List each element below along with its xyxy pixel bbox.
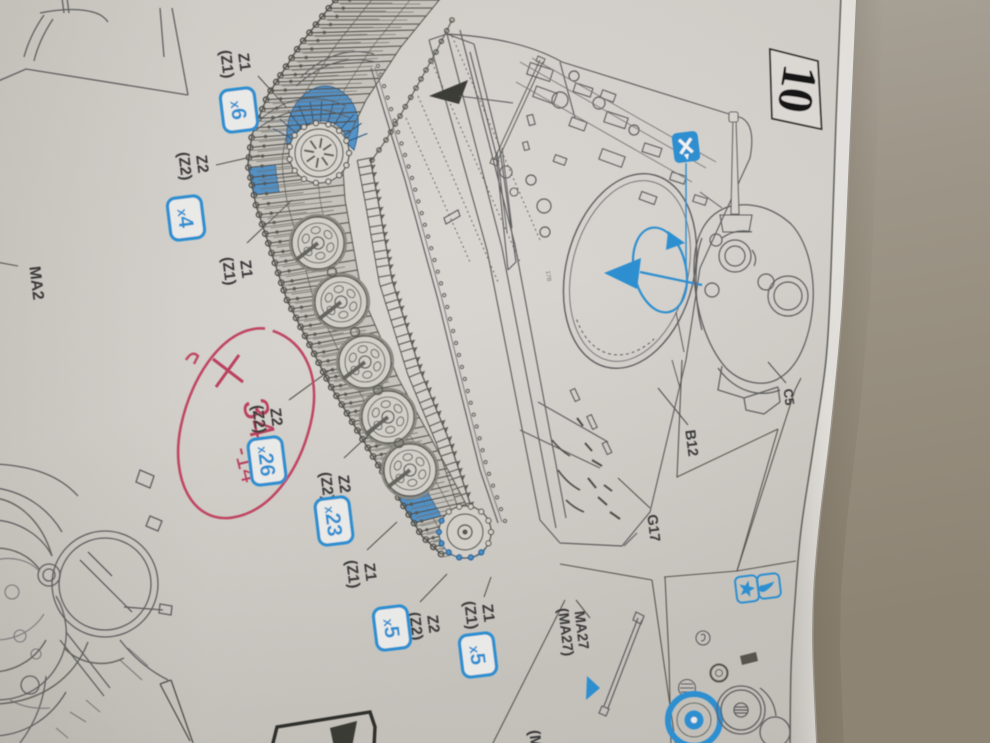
svg-text:(Z1): (Z1)	[342, 559, 362, 589]
svg-text:Z1: Z1	[478, 603, 497, 623]
svg-text:(Z2): (Z2)	[174, 151, 194, 181]
svg-text:Z1: Z1	[236, 259, 255, 279]
svg-text:Z2: Z2	[192, 154, 211, 174]
svg-text:(Z1): (Z1)	[460, 600, 480, 630]
svg-text:G17: G17	[643, 514, 662, 543]
svg-text:Z2: Z2	[266, 407, 285, 427]
svg-text:Z1: Z1	[360, 562, 379, 582]
svg-text:C5: C5	[781, 388, 798, 406]
svg-text:Z2: Z2	[423, 614, 442, 634]
svg-text:(Z1): (Z1)	[216, 49, 236, 79]
svg-text:Z2: Z2	[334, 474, 353, 494]
svg-text:B12: B12	[681, 429, 700, 457]
svg-text:(Z2): (Z2)	[248, 404, 268, 434]
svg-text:(M: (M	[525, 729, 544, 743]
svg-text:Z1: Z1	[234, 52, 253, 72]
svg-text:(Z1): (Z1)	[218, 256, 238, 286]
